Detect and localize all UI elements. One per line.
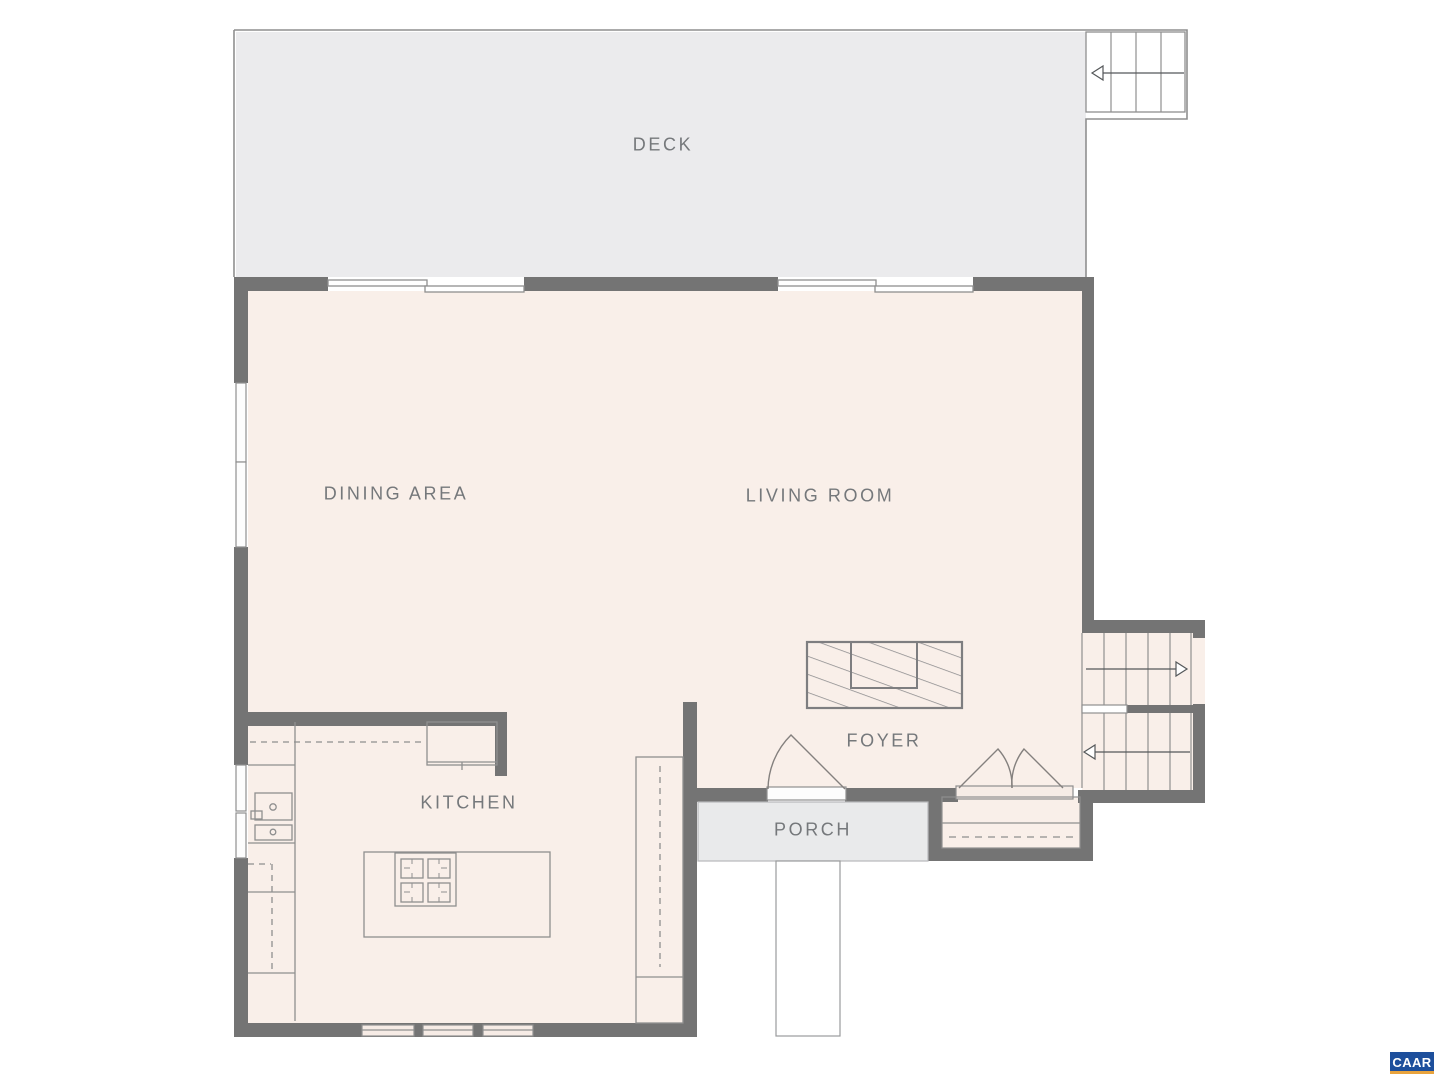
- stair-landing-divider: [1082, 705, 1127, 713]
- dining-window-upper: [236, 383, 246, 462]
- room-label-foyer: FOYER: [846, 731, 921, 752]
- kitchen-window-upper: [236, 765, 246, 811]
- kitchen-window-lower: [236, 813, 246, 858]
- room-label-deck: DECK: [633, 135, 693, 156]
- deck-area: [234, 30, 1187, 277]
- caar-logo-accent-bar: [1390, 1071, 1434, 1074]
- front-walkway: [776, 861, 840, 1036]
- room-label-kitchen: KITCHEN: [420, 793, 517, 814]
- caar-logo-text: CAAR: [1392, 1056, 1431, 1071]
- room-label-dining: DINING AREA: [324, 484, 469, 505]
- floorplan-canvas: DECK DINING AREA LIVING ROOM KITCHEN FOY…: [0, 0, 1440, 1080]
- room-label-porch: PORCH: [774, 820, 852, 841]
- kitchen-bottom-windows: [362, 1025, 533, 1036]
- foyer-hatch-feature: [807, 642, 962, 708]
- room-label-living: LIVING ROOM: [746, 486, 895, 507]
- deck-stairs: [1086, 32, 1185, 112]
- interior-floor: [248, 291, 1205, 1023]
- caar-logo: CAAR: [1390, 1052, 1434, 1074]
- floorplan-drawing: [0, 0, 1440, 1080]
- dining-window-lower: [236, 462, 246, 547]
